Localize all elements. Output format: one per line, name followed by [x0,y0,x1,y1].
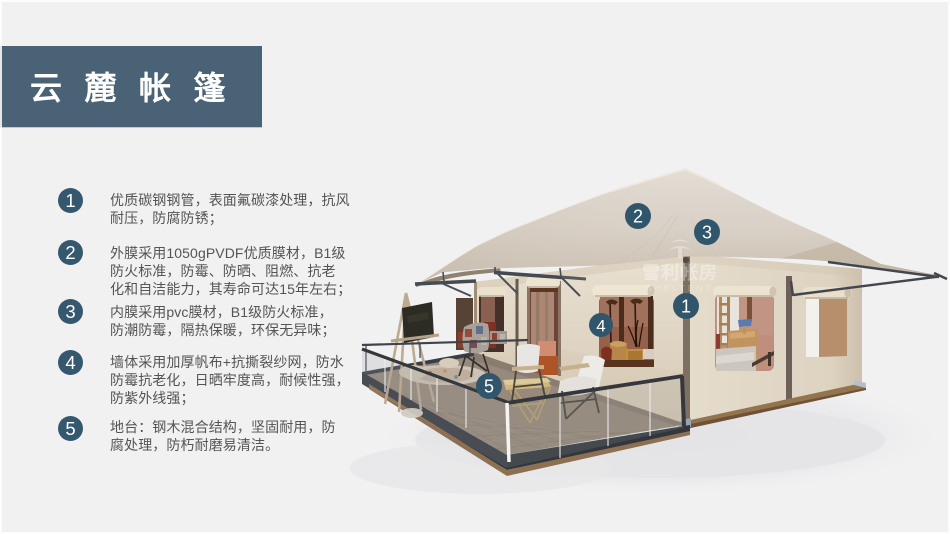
svg-text:5: 5 [484,377,494,397]
svg-text:1: 1 [681,297,691,317]
svg-text:4: 4 [596,317,605,336]
svg-text:2: 2 [633,207,643,227]
svg-text:3: 3 [702,223,712,243]
svg-text:雪利帐房: 雪利帐房 [642,262,718,283]
svg-text:SHELTENT: SHELTENT [646,283,714,293]
